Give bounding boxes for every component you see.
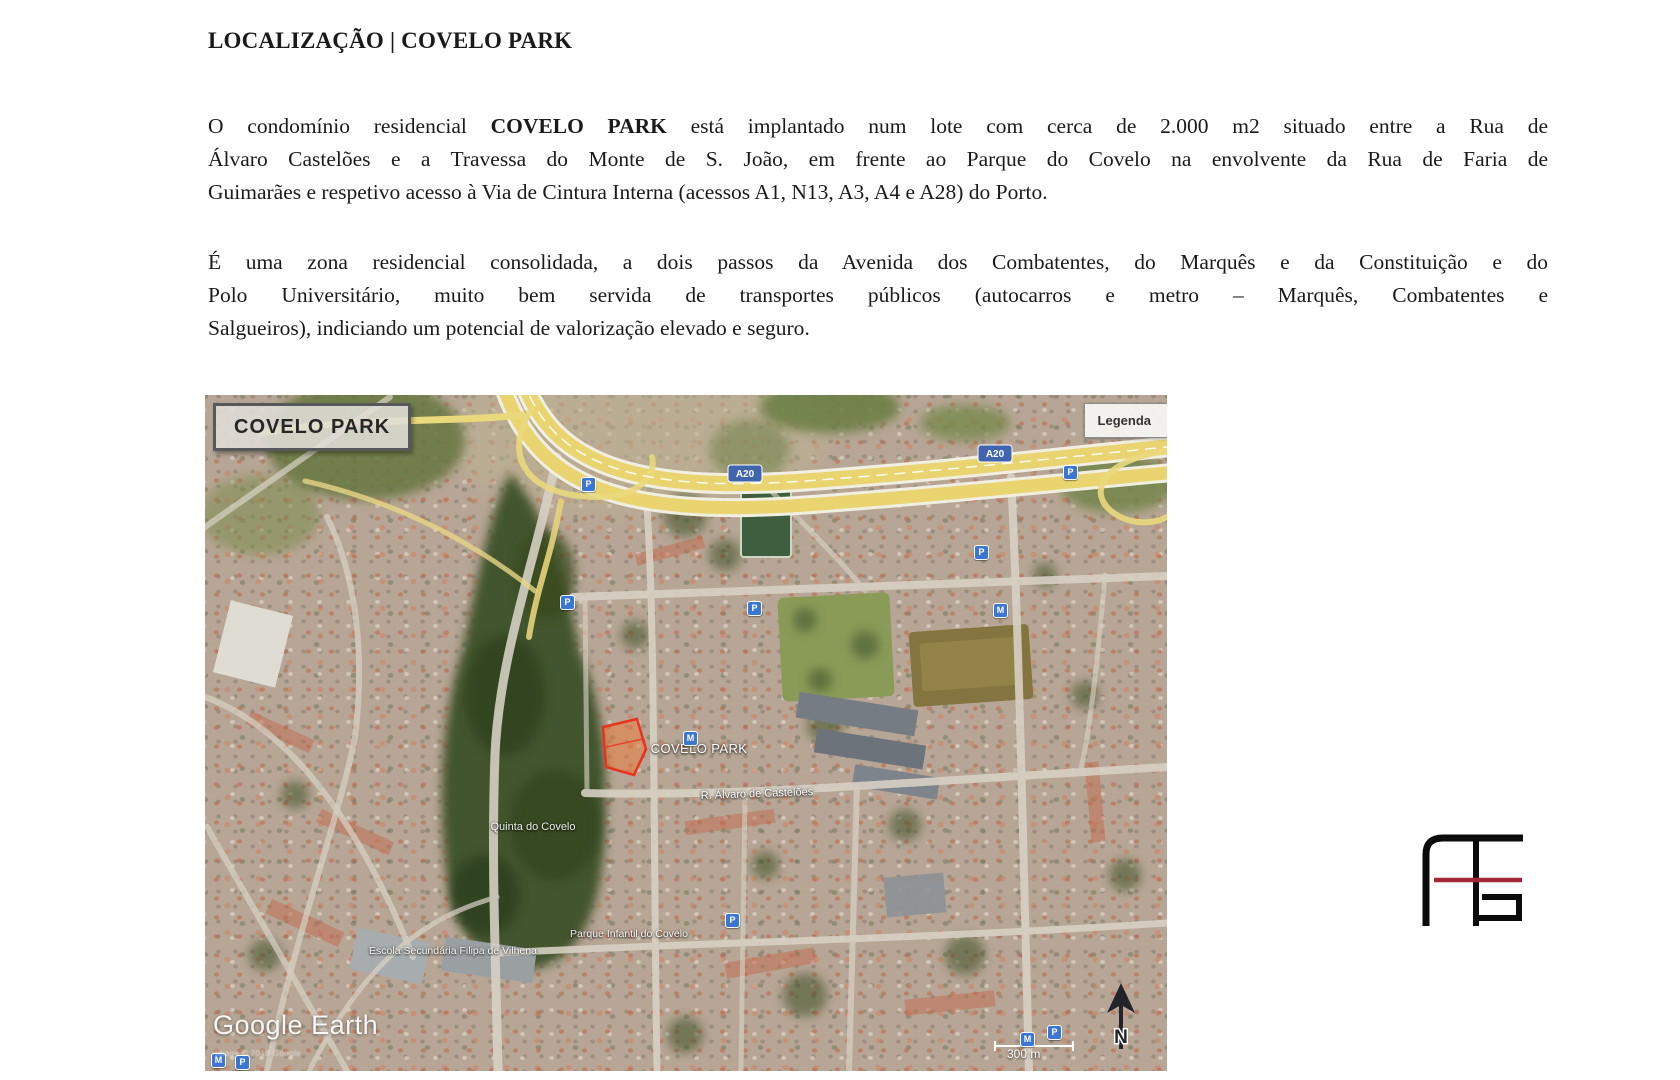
playground-label: Parque Infantil do Covelo [570, 928, 688, 940]
property-lot-marker [603, 719, 646, 775]
parking-icon: P [581, 477, 596, 492]
scale-label: 300 m [1007, 1048, 1040, 1060]
parking-icon: P [747, 601, 762, 616]
parking-icon: P [1063, 465, 1078, 480]
metro-icon: M [683, 731, 698, 746]
highway-shield-label: A20 [986, 449, 1005, 460]
paragraph-line: Guimarães e respetivo acesso à Via de Ci… [208, 176, 1548, 209]
paragraph-neighbourhood: É uma zona residencial consolidada, a do… [208, 246, 1548, 345]
map-title-box: COVELO PARK [213, 403, 411, 451]
north-arrow-icon: N [1107, 983, 1135, 1049]
paragraph-location: O condomínio residencial COVELO PARK est… [208, 110, 1548, 209]
north-label: N [1114, 1027, 1128, 1048]
legend-button: Legenda [1084, 403, 1167, 438]
page-title: LOCALIZAÇÃO | COVELO PARK [208, 28, 1548, 54]
highway-shield-label: A20 [736, 469, 755, 480]
parking-icon: P [1047, 1025, 1062, 1040]
paragraph-line: Salgueiros), indiciando um potencial de … [208, 312, 1548, 345]
paragraph-line: É uma zona residencial consolidada, a do… [208, 246, 1548, 279]
google-earth-watermark: Google Earth [213, 1011, 378, 1041]
metro-icon: M [993, 603, 1008, 618]
company-logo [1418, 826, 1532, 930]
page: { "document": { "title": "LOCALIZAÇÃO | … [0, 0, 1680, 1080]
bold-project-name: COVELO PARK [491, 114, 667, 138]
paragraph-line: Álvaro Castelões e a Travessa do Monte d… [208, 143, 1548, 176]
paragraph-line: Polo Universitário, muito bem servida de… [208, 279, 1548, 312]
paragraph-line: O condomínio residencial COVELO PARK est… [208, 110, 1548, 143]
map-attribution: Image © 2018 Google [215, 1050, 301, 1058]
parking-icon: P [560, 595, 575, 610]
site-label: COVELO PARK [651, 741, 748, 756]
park-label: Quinta do Covelo [491, 821, 576, 833]
satellite-map: A20 A20 N COVELO PARK Legenda COVELO PAR… [205, 395, 1167, 1071]
logo-bracket [1474, 897, 1519, 918]
metro-icon: M [1020, 1032, 1035, 1047]
parking-icon: P [974, 545, 989, 560]
parking-icon: P [725, 913, 740, 928]
school-label: Escola Secundária Filipa de Vilhena [369, 945, 537, 957]
